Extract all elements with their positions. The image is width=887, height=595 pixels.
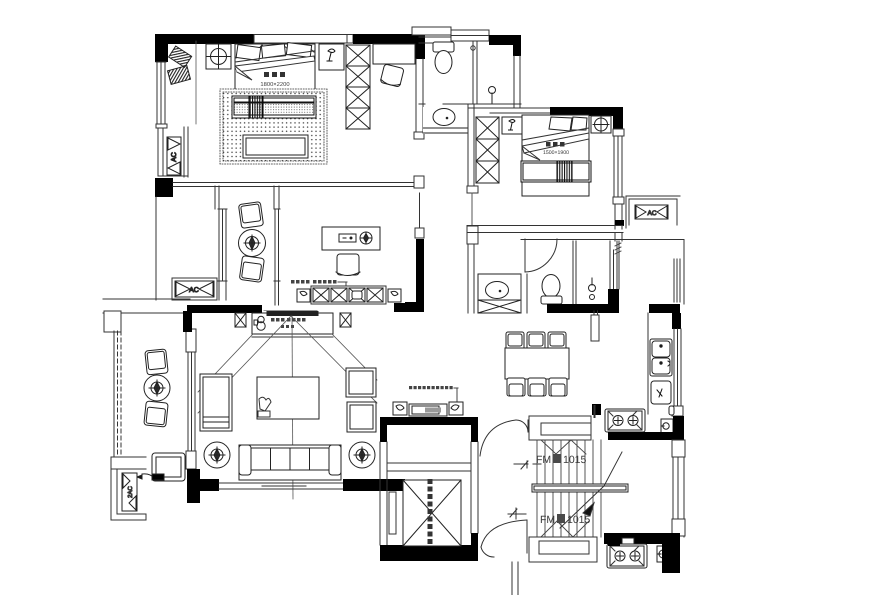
svg-text:AC: AC bbox=[647, 210, 656, 217]
svg-text:1015: 1015 bbox=[567, 514, 591, 526]
svg-text:AC: AC bbox=[189, 287, 199, 294]
svg-text:FM: FM bbox=[536, 454, 551, 466]
svg-text:FM: FM bbox=[540, 514, 555, 526]
svg-text:AC: AC bbox=[171, 152, 178, 162]
svg-text:1015: 1015 bbox=[563, 454, 587, 466]
svg-text:1800×2200: 1800×2200 bbox=[260, 81, 289, 88]
svg-text:2AC: 2AC bbox=[127, 485, 134, 497]
svg-text:1500×1900: 1500×1900 bbox=[543, 150, 569, 156]
